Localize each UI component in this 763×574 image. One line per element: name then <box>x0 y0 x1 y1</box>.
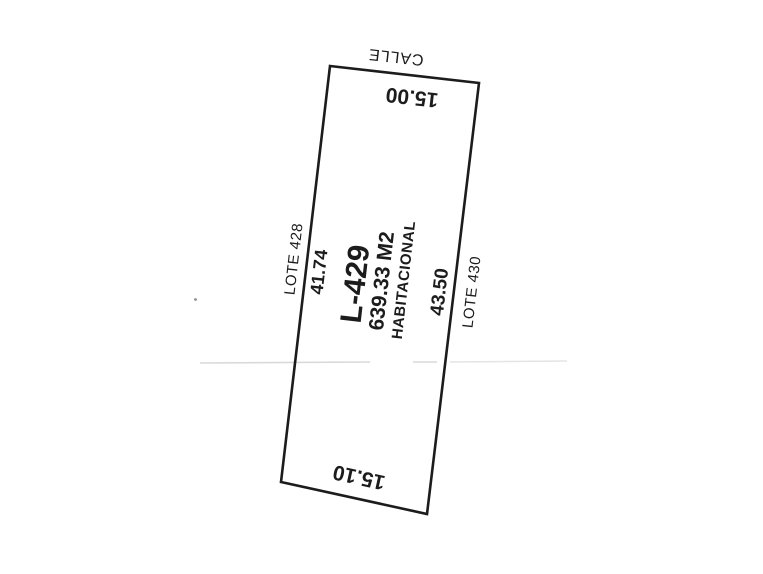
ink-speck <box>194 298 197 301</box>
fold-line-faint <box>450 361 567 362</box>
left-side-dimension: 41.74 <box>308 249 331 296</box>
right-side-dimension: 43.50 <box>428 267 452 316</box>
scanned-lot-plan-page: CALLE 15.00 LOTE 428 41.74 L-429 639.33 … <box>0 0 763 574</box>
front-dimension: 15.00 <box>385 84 440 111</box>
fold-line <box>200 362 437 363</box>
